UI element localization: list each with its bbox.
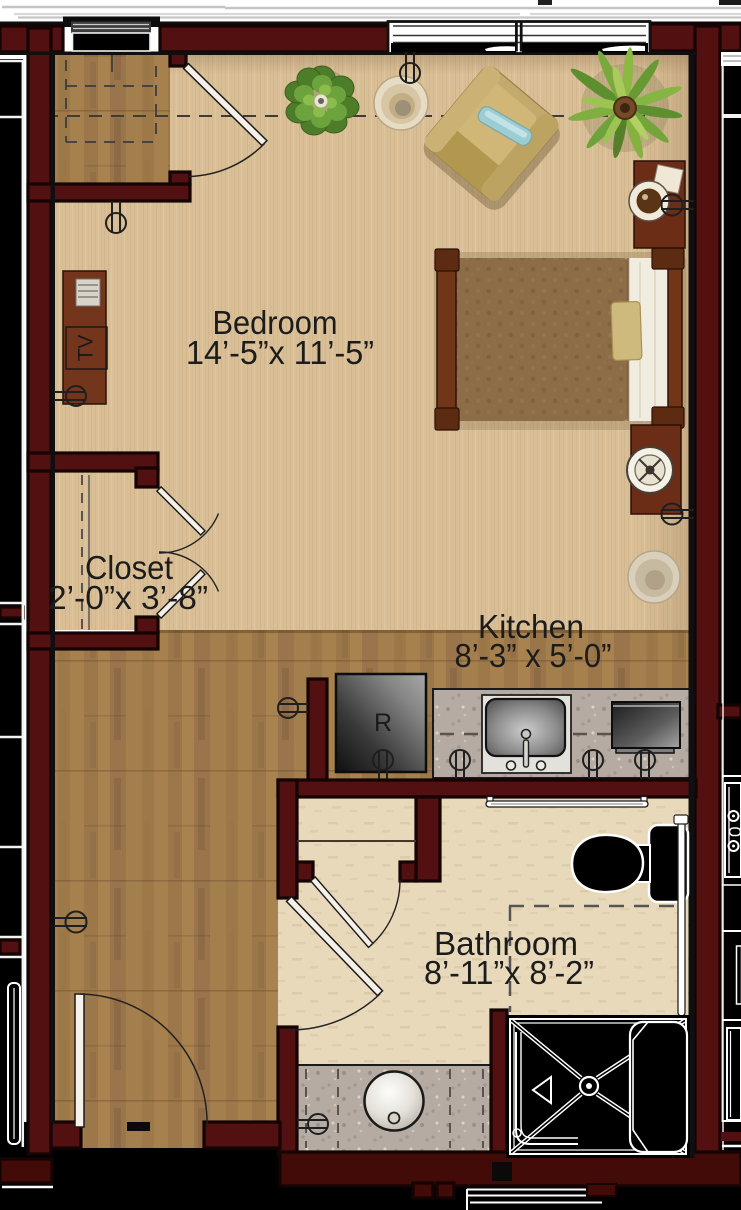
svg-text:R: R [374, 709, 392, 737]
svg-text:8’-11”x 8’-2”: 8’-11”x 8’-2” [424, 954, 594, 991]
svg-text:TV: TV [75, 335, 98, 362]
svg-text:14’-5”x 11’-5”: 14’-5”x 11’-5” [186, 334, 374, 371]
svg-text:8’-3” x 5’-0”: 8’-3” x 5’-0” [455, 637, 612, 674]
svg-text:2’-0”x 3’-8”: 2’-0”x 3’-8” [48, 579, 208, 616]
